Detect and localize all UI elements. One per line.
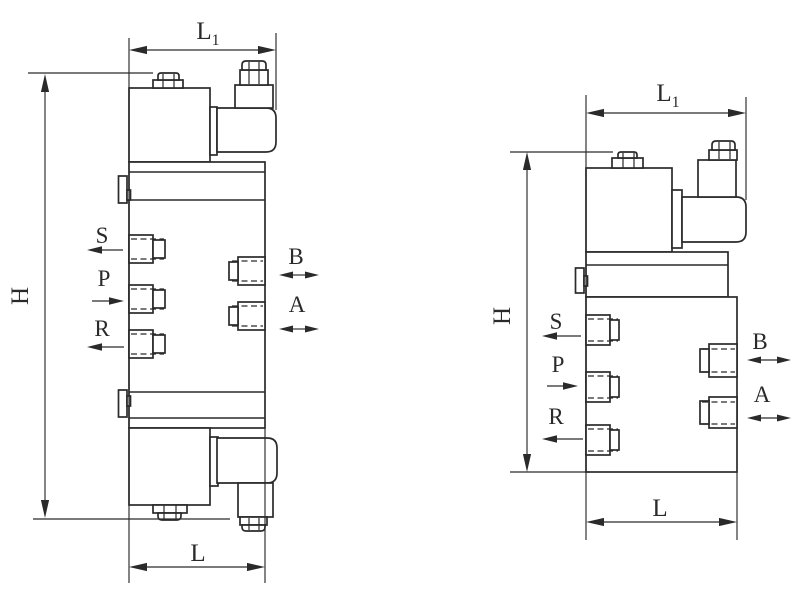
connector-plug — [698, 160, 736, 197]
dim-label-l: L — [190, 540, 205, 567]
valve-dimension-drawing: L1 H L S P R B A — [0, 0, 800, 599]
port-p-boss — [586, 372, 619, 402]
top-cable-gland-icon — [240, 61, 268, 85]
cable-connector — [672, 141, 746, 248]
top-connector-flange — [210, 107, 217, 155]
port-a-arrow-icon — [279, 326, 319, 333]
adapter-plate-block — [586, 252, 728, 297]
port-a-boss — [229, 302, 265, 330]
port-p-arrow-icon — [547, 382, 578, 389]
solenoid — [586, 152, 672, 252]
port-label-r: R — [94, 316, 110, 341]
port-s-boss — [129, 235, 165, 263]
bottom-connector-elbow — [217, 438, 277, 483]
top-solenoid-body — [129, 88, 210, 162]
port-r-arrow-icon — [87, 343, 124, 350]
bottom-cable-connector — [210, 437, 277, 531]
port-a-arrow-icon — [747, 415, 791, 422]
port-label-b: B — [288, 244, 303, 269]
top-solenoid — [129, 73, 210, 162]
port-r-boss — [586, 425, 619, 455]
port-r-arrow-icon — [542, 435, 583, 442]
dim-label-l1: L1 — [196, 18, 219, 49]
port-b-arrow-icon — [279, 272, 319, 279]
top-connector-plug — [235, 85, 273, 108]
port-p-arrow-icon — [92, 297, 124, 304]
port-label-r: R — [548, 404, 564, 429]
left-valve-view: L1 H L S P R B A — [7, 18, 319, 583]
dim-label-h: H — [7, 287, 34, 305]
port-label-a: A — [289, 292, 306, 317]
port-r-boss — [129, 330, 165, 358]
dim-label-l1: L1 — [656, 80, 679, 111]
connector-elbow — [682, 197, 746, 242]
bottom-solenoid — [129, 428, 210, 520]
port-p-boss — [129, 285, 165, 313]
port-a-boss — [700, 397, 737, 428]
connector-flange — [672, 190, 682, 248]
top-cable-connector — [210, 61, 276, 155]
port-label-a: A — [754, 382, 771, 407]
port-s-boss — [586, 315, 619, 345]
port-label-p: P — [552, 352, 565, 377]
port-b-arrow-icon — [747, 357, 791, 364]
bottom-cable-gland-icon — [240, 517, 267, 531]
solenoid-body — [586, 168, 672, 252]
mounting-nut-icon — [612, 152, 643, 168]
port-b-boss — [229, 257, 265, 285]
dim-l1 — [586, 109, 746, 117]
port-label-p: P — [98, 266, 111, 291]
dim-label-l: L — [652, 495, 667, 522]
port-label-b: B — [752, 329, 767, 354]
dim-l1 — [129, 46, 276, 54]
bottom-solenoid-body — [129, 428, 210, 505]
top-connector-elbow — [217, 108, 276, 152]
port-b-boss — [700, 344, 737, 377]
dim-label-h: H — [489, 307, 516, 325]
top-mounting-nut-icon — [153, 73, 183, 88]
right-valve-view: L1 H L S P R B A — [489, 80, 791, 540]
bottom-mounting-nut-icon — [153, 505, 187, 520]
cable-gland-icon — [709, 141, 737, 160]
technical-drawing-canvas: L1 H L S P R B A — [0, 0, 800, 599]
port-label-s: S — [550, 309, 563, 334]
port-label-s: S — [96, 223, 109, 248]
bottom-connector-plug — [238, 483, 273, 517]
